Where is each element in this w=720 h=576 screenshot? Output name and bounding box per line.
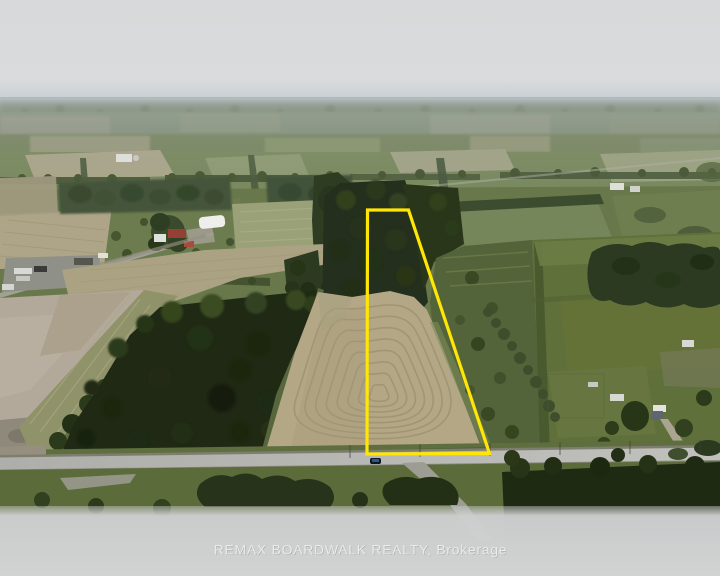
- svg-text:REMAX BOARDWALK REALTY, Broker: REMAX BOARDWALK REALTY, Brokerage: [214, 542, 508, 558]
